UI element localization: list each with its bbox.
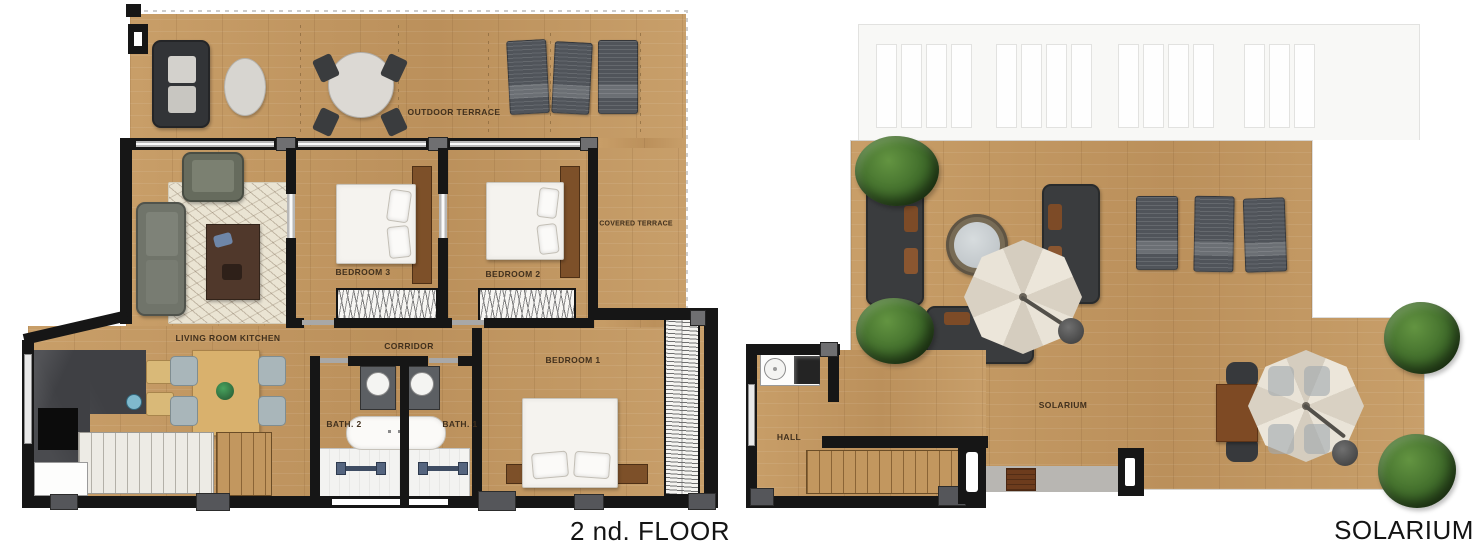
terrace-pillar-slot [134,32,142,46]
sliding-door-glass [136,141,274,147]
terrace-round-table [328,52,394,118]
bed-pillow [536,187,560,219]
shower-fixture [342,466,380,471]
deck-pillar-slot [966,452,978,492]
doormat [1006,468,1036,491]
pergola-slat [1021,44,1042,128]
tree [1378,434,1456,508]
wall-block [50,494,78,510]
shower-fixture-cap [418,462,428,475]
window [24,354,32,444]
pergola-slat [1193,44,1214,128]
pergola-slat [1294,44,1315,128]
staircase-main [78,432,214,494]
pergola-slat [1269,44,1290,128]
chair-under-parasol [1304,366,1330,396]
door-leaf [452,320,484,325]
pergola-slat [951,44,972,128]
wardrobe-bedroom3 [336,288,438,322]
wall [588,148,598,320]
tree [855,136,939,206]
plan-caption-solarium: SOLARIUM [1334,517,1474,543]
sofa-cushion-brown [904,206,918,232]
terrace-grid-line [550,28,551,132]
kitchen-cabinet [34,462,88,496]
wall [472,328,482,506]
cooktop [38,408,78,450]
parasol-base [1058,318,1084,344]
kitchen-sink [126,394,142,410]
coffee-table-tray [222,264,242,280]
terrace-grid-line [640,28,641,132]
bed-pillow [531,450,569,479]
chair-under-parasol [1268,366,1294,396]
terrace-dashed-top [126,10,688,12]
sun-lounger [506,39,550,115]
wardrobe-bedroom1 [664,316,700,496]
pergola-slat [901,44,922,128]
wall-block [196,493,230,511]
living-sofa-cushion [146,260,178,304]
wall [120,138,132,324]
wall [438,238,448,326]
sliding-door-glass [439,194,447,238]
terrace-grid-line [300,20,301,132]
wall [484,318,594,328]
sink-bath2 [366,372,390,396]
chimney-marker [126,4,141,17]
room-label-outdoor-terrace: OUTDOOR TERRACE [408,108,501,117]
kitchenette-stove [794,356,820,384]
wall-block [688,493,716,510]
sliding-door-glass [450,141,586,147]
pergola-slat [1143,44,1164,128]
wardrobe-bedroom2 [478,288,576,322]
wall [704,308,718,508]
window-slot [332,499,448,505]
sun-lounger [1243,197,1288,272]
dining-chair [258,356,286,386]
sink-bath1 [410,372,434,396]
sun-lounger [1193,196,1234,273]
shower-fixture-cap [458,462,468,475]
living-sofa-cushion [146,212,178,256]
room-label-bedroom1: BEDROOM 1 [545,356,600,365]
wall-block [750,488,774,506]
dining-centerpiece [216,382,234,400]
door-leaf [319,358,348,363]
deck-pillar-slot [1125,458,1135,486]
chair-under-parasol [1268,424,1294,454]
sofa-cushion-brown [944,312,970,325]
sun-lounger [598,40,638,114]
kitchenette-sink-drain [773,367,777,371]
wall [286,148,296,194]
room-label-bath1: BATH. 1 [442,420,477,429]
sofa-cushion-brown [1048,204,1062,230]
parasol-base [1332,440,1358,466]
door-leaf [302,320,334,325]
room-label-hall: HALL [777,433,801,442]
bathtub-faucet [388,430,391,433]
sun-lounger [551,41,593,115]
sofa-cushion-brown [904,248,918,274]
dining-chair [170,356,198,386]
terrace-sofa-cushion [168,56,196,83]
terrace-dashed-right [686,10,688,310]
pergola-slat [876,44,897,128]
chair-under-parasol [1304,424,1330,454]
window [748,384,755,446]
sliding-door-glass [287,194,295,238]
pergola-slat [1071,44,1092,128]
shower-fixture [424,466,462,471]
bed-pillow [573,451,611,479]
terrace-ottoman [224,58,266,116]
pergola-slat [1168,44,1189,128]
room-label-living: LIVING ROOM KITCHEN [176,334,281,343]
room-label-covered-terrace: COVERED TERRACE [599,221,672,228]
terrace-sofa [152,40,210,128]
room-label-bedroom2: BEDROOM 2 [485,270,540,279]
pergola-slat [1244,44,1265,128]
wall [310,356,320,506]
bed-pillow [386,189,412,224]
wall [286,238,296,326]
room-label-solarium: SOLARIUM [1039,401,1088,410]
room-label-corridor: CORRIDOR [384,342,433,351]
dining-chair [170,396,198,426]
pergola-slat [1046,44,1067,128]
shower-fixture-cap [336,462,346,475]
living-armchair-cushion [192,160,234,192]
bed-pillow [536,223,560,255]
dining-chair [258,396,286,426]
wall [334,318,452,328]
room-label-bath2: BATH. 2 [326,420,361,429]
pergola-slat [996,44,1017,128]
wall-block [574,494,604,510]
room-label-bedroom3: BEDROOM 3 [335,268,390,277]
staircase-lower [216,432,272,496]
shower-fixture-cap [376,462,386,475]
tree [1384,302,1460,374]
wall [400,356,409,506]
pergola-slat [926,44,947,128]
tree [856,298,934,364]
door-leaf [429,358,458,363]
deck-cutout [1312,140,1425,318]
bed-pillow [386,225,411,259]
floorplan-canvas: OUTDOOR TERRACE COVERED TERRACE BEDROOM … [0,0,1474,558]
plan-caption-second-floor: 2 nd. FLOOR [570,518,730,544]
wall [348,356,428,366]
pergola-slat [1118,44,1139,128]
sliding-door-glass [298,141,426,147]
wall [438,148,448,194]
wall-block [478,491,516,511]
terrace-sofa-cushion [168,86,196,113]
wall-pillar [690,310,706,326]
wall-pillar [820,342,838,357]
sun-lounger [1136,196,1178,270]
